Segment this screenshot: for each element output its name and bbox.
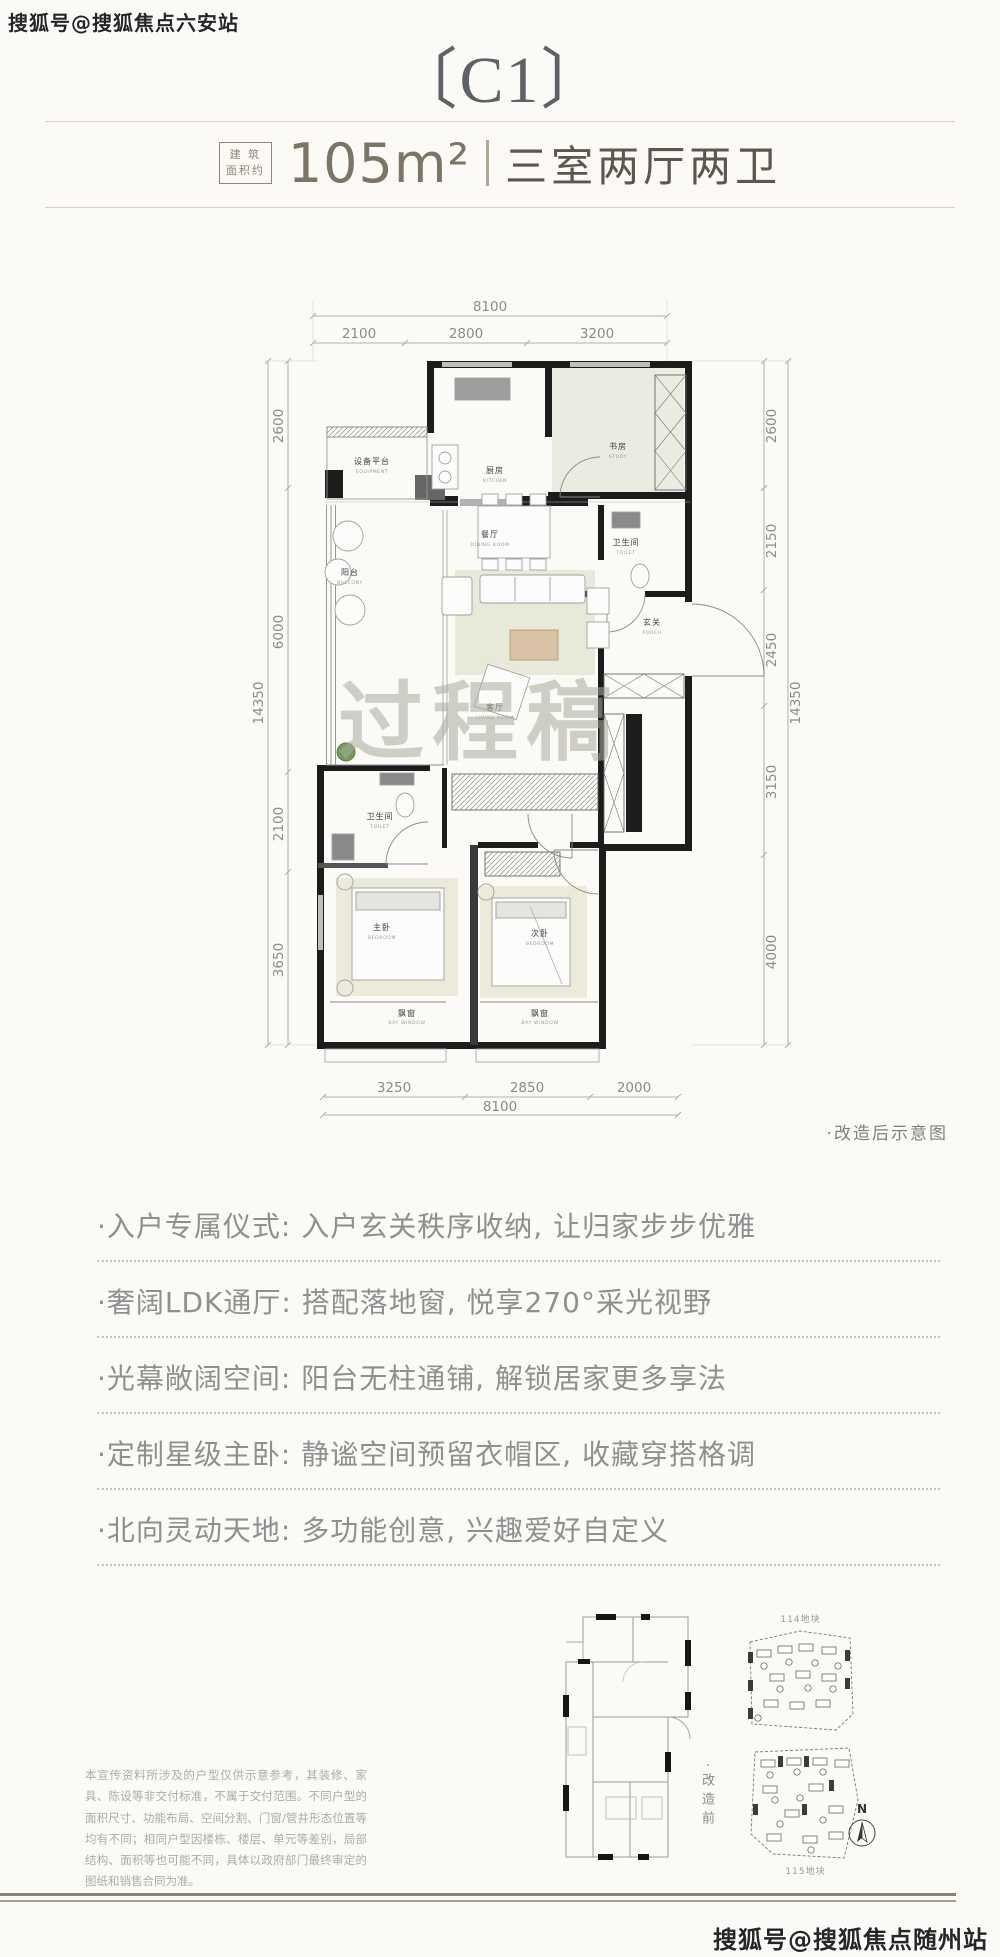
disclaimer-text: 本宣传资料所涉及的户型仅供示意参考，其装修、家具、陈设等非交付标准，不属于交付范…: [85, 1765, 367, 1893]
dim-left-2: 6000: [271, 615, 287, 649]
dim-top-3: 3200: [580, 326, 614, 342]
dim-right-5: 4000: [764, 935, 780, 969]
compass-n-label: N: [857, 1802, 867, 1816]
divider-line: [45, 207, 955, 208]
before-plan-svg: [538, 1602, 700, 1870]
room-balcony-cn: 阳台: [341, 567, 359, 577]
spec-divider: [486, 140, 489, 186]
dim-left-total: 14350: [251, 682, 267, 725]
feature-item: ·定制星级主卧: 静谧空间预留衣帽区, 收藏穿搭格调: [97, 1414, 940, 1490]
feature-item: ·光幕敞阔空间: 阳台无柱通铺, 解锁居家更多享法: [97, 1338, 940, 1414]
dim-top-1: 2100: [342, 326, 376, 342]
before-renovation-caption: ·改造前: [697, 1763, 716, 1830]
watermark-bottom: 搜狐号@搜狐焦点随州站: [713, 1920, 988, 1955]
feature-item: ·北向灵动天地: 多功能创意, 兴趣爱好自定义: [97, 1490, 940, 1566]
after-renovation-caption: ·改造后示意图: [827, 1119, 948, 1144]
room-porch-en: PORCH: [642, 630, 661, 636]
room-toilet-a-en: TOILET: [615, 550, 636, 556]
dim-left-3: 2100: [271, 807, 287, 841]
feature-item: ·入户专属仪式: 入户玄关秩序收纳, 让归家步步优雅: [97, 1186, 940, 1262]
page: 搜狐号@搜狐焦点六安站 〔C1〕 建 筑 面积约 105m² 三室两厅两卫: [0, 0, 1000, 1957]
dim-right-2: 2150: [764, 524, 780, 558]
room-toilet-b-en: TOILET: [369, 824, 390, 830]
dim-right-3: 2450: [764, 633, 780, 667]
room-bay-left-en: BAY WINDOW: [388, 1020, 425, 1026]
room-second-en: BEDROOM: [526, 941, 554, 947]
room-master-cn: 主卧: [373, 922, 391, 932]
room-toilet-a-cn: 卫生间: [613, 537, 640, 547]
area-tag-line1: 建 筑: [226, 147, 265, 163]
room-porch-cn: 玄关: [643, 617, 661, 627]
room-equipment-cn: 设备平台: [354, 456, 390, 466]
draft-watermark: 过程稿: [338, 652, 620, 777]
room-bay-right-en: BAY WINDOW: [521, 1020, 558, 1026]
room-equipment-en: EQUIPMENT: [356, 469, 389, 475]
area-tag-line2: 面积约: [226, 163, 265, 179]
dim-bottom-3: 2000: [617, 1080, 651, 1096]
feature-list: ·入户专属仪式: 入户玄关秩序收纳, 让归家步步优雅 ·奢阔LDK通厅: 搭配落…: [97, 1186, 940, 1566]
area-tag-box: 建 筑 面积约: [219, 142, 272, 184]
room-study-cn: 书房: [609, 441, 627, 451]
dim-right-1: 2600: [764, 409, 780, 443]
dim-bottom-2: 2850: [510, 1080, 544, 1096]
compass-icon: N: [845, 1800, 879, 1852]
dim-right-4: 3150: [764, 765, 780, 799]
room-study-en: STUDY: [609, 454, 627, 460]
dim-top-2: 2800: [449, 326, 483, 342]
room-second-cn: 次卧: [531, 928, 549, 938]
site-plot-114-label: 114地块: [743, 1612, 858, 1625]
dim-bottom-1: 3250: [377, 1080, 411, 1096]
room-bay-left-cn: 飘窗: [398, 1008, 416, 1018]
area-value: 105m²: [288, 132, 470, 195]
dim-bottom-total: 8100: [483, 1099, 517, 1115]
divider-line: [45, 121, 955, 122]
room-kitchen-en: KITCHEN: [483, 478, 507, 484]
spec-row: 建 筑 面积约 105m² 三室两厅两卫: [0, 128, 1000, 198]
site-plot-115-label: 115地块: [748, 1864, 863, 1877]
layout-text: 三室两厅两卫: [505, 133, 781, 194]
room-master-en: BEDROOM: [368, 935, 396, 941]
room-bay-right-cn: 飘窗: [531, 1008, 549, 1018]
room-kitchen-cn: 厨房: [486, 465, 504, 475]
dim-right-total: 14350: [788, 682, 804, 725]
dim-left-4: 3650: [271, 943, 287, 977]
room-toilet-b-cn: 卫生间: [367, 811, 394, 821]
feature-item: ·奢阔LDK通厅: 搭配落地窗, 悦享270°采光视野: [97, 1262, 940, 1338]
site-plan-114: [742, 1626, 857, 1738]
dim-left-1: 2600: [271, 409, 287, 443]
room-dining-en: DINING ROOM: [470, 542, 509, 548]
room-balcony-en: BALCONY: [337, 580, 363, 586]
dim-top-total: 8100: [473, 299, 507, 315]
page-title: 〔C1〕: [0, 26, 1000, 122]
room-dining-cn: 餐厅: [481, 530, 499, 539]
footer-rule-light: [0, 1900, 956, 1902]
footer-rule-dark: [0, 1893, 956, 1896]
